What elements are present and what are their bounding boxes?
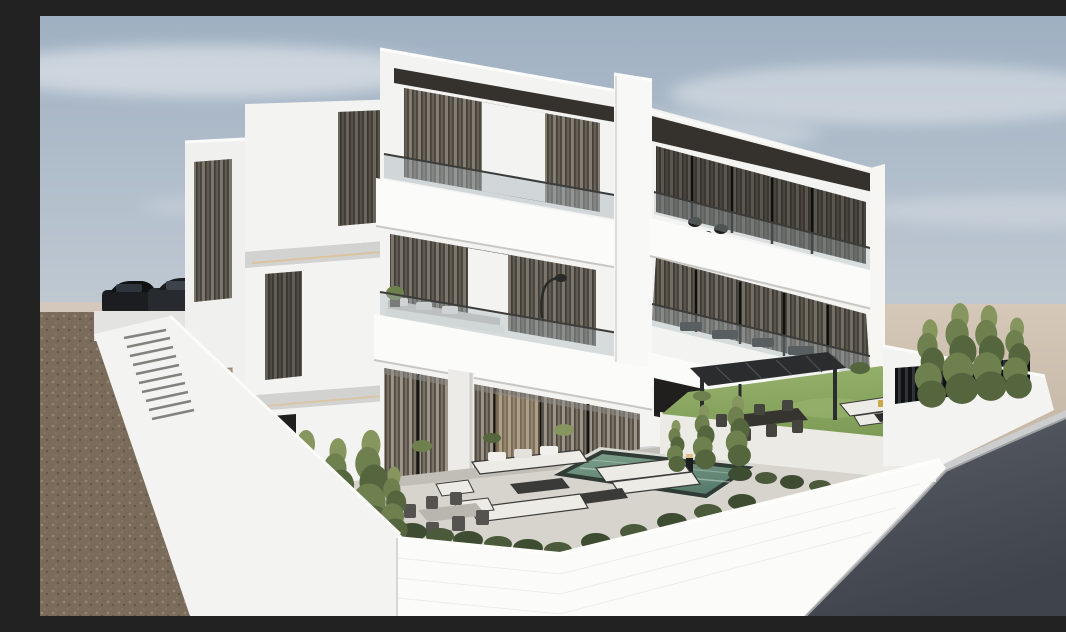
cushion [488, 452, 506, 461]
cushion [540, 446, 558, 455]
center-block [374, 49, 654, 490]
architectural-render: 3D architectural rendering of a modern t… [40, 16, 1066, 616]
cushion [514, 449, 532, 458]
render-canvas: 3D architectural rendering of a modern t… [40, 16, 1066, 616]
stair-tower [614, 74, 652, 368]
car-window [116, 284, 142, 292]
